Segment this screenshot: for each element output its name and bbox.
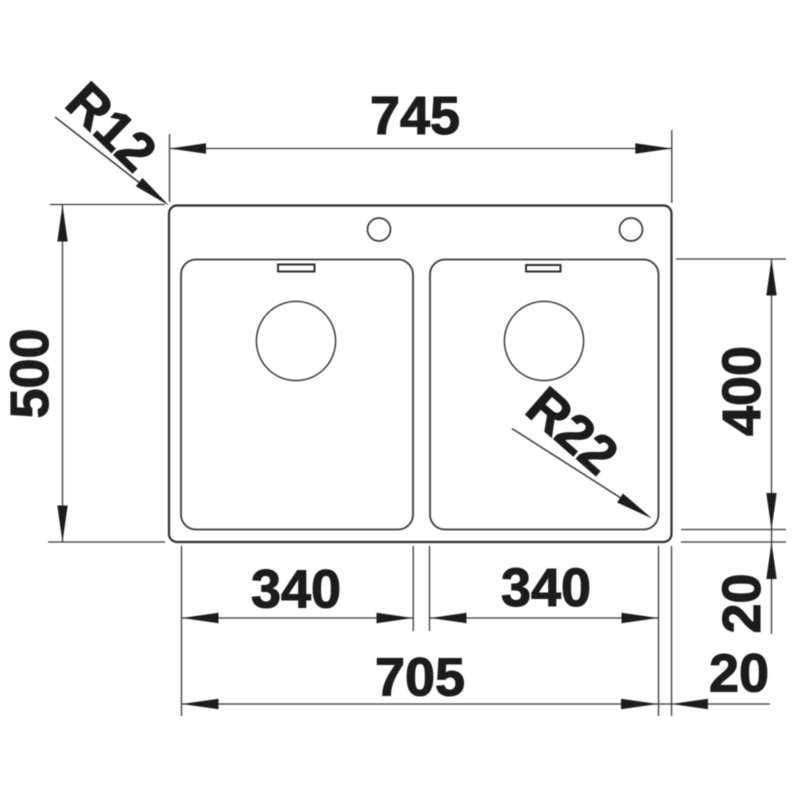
svg-text:20: 20	[712, 573, 772, 633]
svg-text:20: 20	[709, 644, 769, 704]
svg-text:400: 400	[712, 346, 772, 436]
svg-text:340: 340	[501, 558, 591, 618]
svg-text:340: 340	[251, 560, 341, 620]
svg-text:705: 705	[375, 648, 465, 708]
svg-text:745: 745	[370, 86, 460, 146]
svg-text:500: 500	[0, 328, 60, 418]
